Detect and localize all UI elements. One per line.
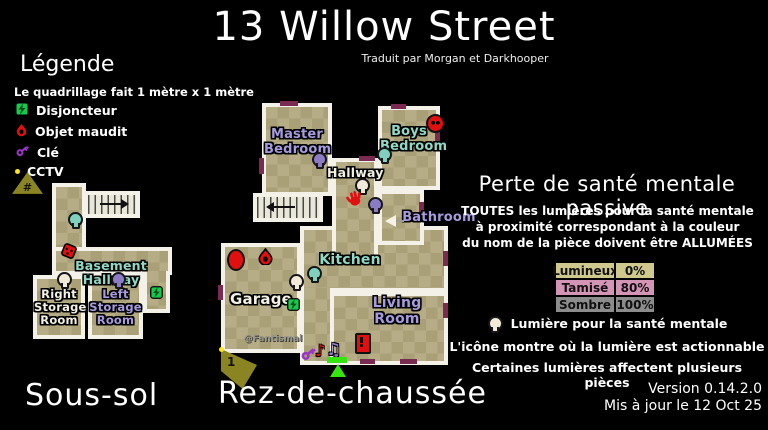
light-icon bbox=[377, 147, 392, 162]
voodoo-doll-icon bbox=[426, 114, 445, 133]
cctv-icon bbox=[219, 347, 224, 352]
legend-item-key: Clé bbox=[15, 143, 59, 161]
light-icon bbox=[57, 272, 72, 287]
right-storage-label: Right Storage Room bbox=[34, 288, 84, 327]
watermark: @Fantismal bbox=[242, 334, 304, 344]
bulb-note-text: Lumière pour la santé mentale bbox=[511, 316, 728, 331]
door-marker bbox=[259, 158, 264, 174]
legend-item-label: Objet maudit bbox=[35, 124, 127, 139]
light-icon bbox=[368, 197, 383, 212]
table-cell-level: Tamisé bbox=[555, 279, 615, 296]
legend-grid-note: Le quadrillage fait 1 mètre x 1 mètre bbox=[14, 85, 254, 99]
door-marker bbox=[360, 359, 375, 364]
legend-item-label: CCTV bbox=[27, 164, 64, 179]
ghost-handprint-icon bbox=[346, 190, 363, 211]
stairs-down-arrow-icon bbox=[265, 202, 295, 212]
key-icon bbox=[15, 143, 30, 162]
left-storage-label: Left Storage Room bbox=[89, 288, 142, 327]
sanity-note-line: à proximité correspondant à la couleur bbox=[450, 220, 765, 234]
stairs-up-arrow-icon bbox=[100, 199, 130, 209]
light-icon bbox=[488, 316, 503, 331]
music-note-icon: ♪ bbox=[315, 341, 325, 360]
cursed-object-icon bbox=[258, 248, 273, 269]
sanity-note-line: du nom de la pièce doivent être ALLUMÉES bbox=[450, 236, 765, 250]
cursed-dice-icon bbox=[60, 242, 78, 264]
table-row: Sombre 100% bbox=[555, 296, 655, 313]
breaker-icon bbox=[15, 101, 29, 120]
ground-floor-stairs bbox=[253, 193, 323, 222]
legend-item-label: Clé bbox=[37, 145, 59, 160]
table-cell-value: 0% bbox=[615, 262, 655, 279]
cursed-object-icon bbox=[15, 122, 28, 141]
updated-text: Mis à jour le 12 Oct 25 bbox=[500, 398, 762, 414]
table-row: Tamisé 80% bbox=[555, 279, 655, 296]
door-marker bbox=[443, 303, 448, 318]
basement-stairs bbox=[84, 191, 140, 218]
sanity-note-line: TOUTES les lumières pour la santé mental… bbox=[450, 204, 765, 218]
door-marker bbox=[443, 251, 448, 266]
light-icon bbox=[289, 274, 304, 289]
page-title: 13 Willow Street bbox=[0, 4, 768, 50]
sanity-icon-note: L'icône montre où la lumière est actionn… bbox=[448, 339, 766, 354]
light-icon bbox=[307, 266, 322, 281]
breaker-icon bbox=[150, 284, 163, 303]
page: 13 Willow Street Traduit par Morgan et D… bbox=[0, 0, 768, 430]
bathroom-arrow-icon bbox=[385, 215, 396, 227]
version-text: Version 0.14.2.0 bbox=[500, 381, 762, 397]
legend-item-cctv: CCTV bbox=[15, 162, 64, 180]
table-cell-level: Lumineux bbox=[555, 262, 615, 279]
table-cell-value: 80% bbox=[615, 279, 655, 296]
door-marker bbox=[359, 156, 375, 161]
door-marker bbox=[218, 285, 223, 300]
bathroom-pointer-line bbox=[396, 220, 404, 222]
entrance-door bbox=[327, 357, 347, 363]
hallway-label: Hallway bbox=[327, 166, 383, 180]
table-cell-level: Sombre bbox=[555, 296, 615, 313]
ground-floor-label: Rez-de-chaussée bbox=[218, 376, 487, 411]
legend-item-cursed-object: Objet maudit bbox=[15, 122, 127, 140]
legend-item-label: Disjoncteur bbox=[36, 103, 117, 118]
light-icon bbox=[68, 212, 83, 227]
cursed-monitor-icon bbox=[355, 333, 371, 354]
door-marker bbox=[280, 101, 298, 106]
cursed-oval-icon bbox=[227, 249, 245, 271]
sanity-bulb-note: Lumière pour la santé mentale bbox=[455, 316, 760, 331]
table-row: Lumineux 0% bbox=[555, 262, 655, 279]
light-icon bbox=[312, 152, 327, 167]
legend-heading: Légende bbox=[20, 52, 114, 77]
door-marker bbox=[400, 359, 417, 364]
table-cell-value: 100% bbox=[615, 296, 655, 313]
sanity-table: Lumineux 0% Tamisé 80% Sombre 100% bbox=[553, 260, 657, 315]
legend-item-breaker: Disjoncteur bbox=[15, 101, 117, 119]
basement-floor-label: Sous-sol bbox=[25, 378, 158, 413]
living-room-label: Living Room bbox=[362, 296, 432, 327]
cctv-icon bbox=[15, 169, 20, 174]
breaker-icon bbox=[287, 296, 300, 315]
door-marker bbox=[391, 104, 406, 109]
light-icon bbox=[111, 272, 126, 287]
page-subtitle: Traduit par Morgan et Darkhooper bbox=[345, 52, 565, 65]
